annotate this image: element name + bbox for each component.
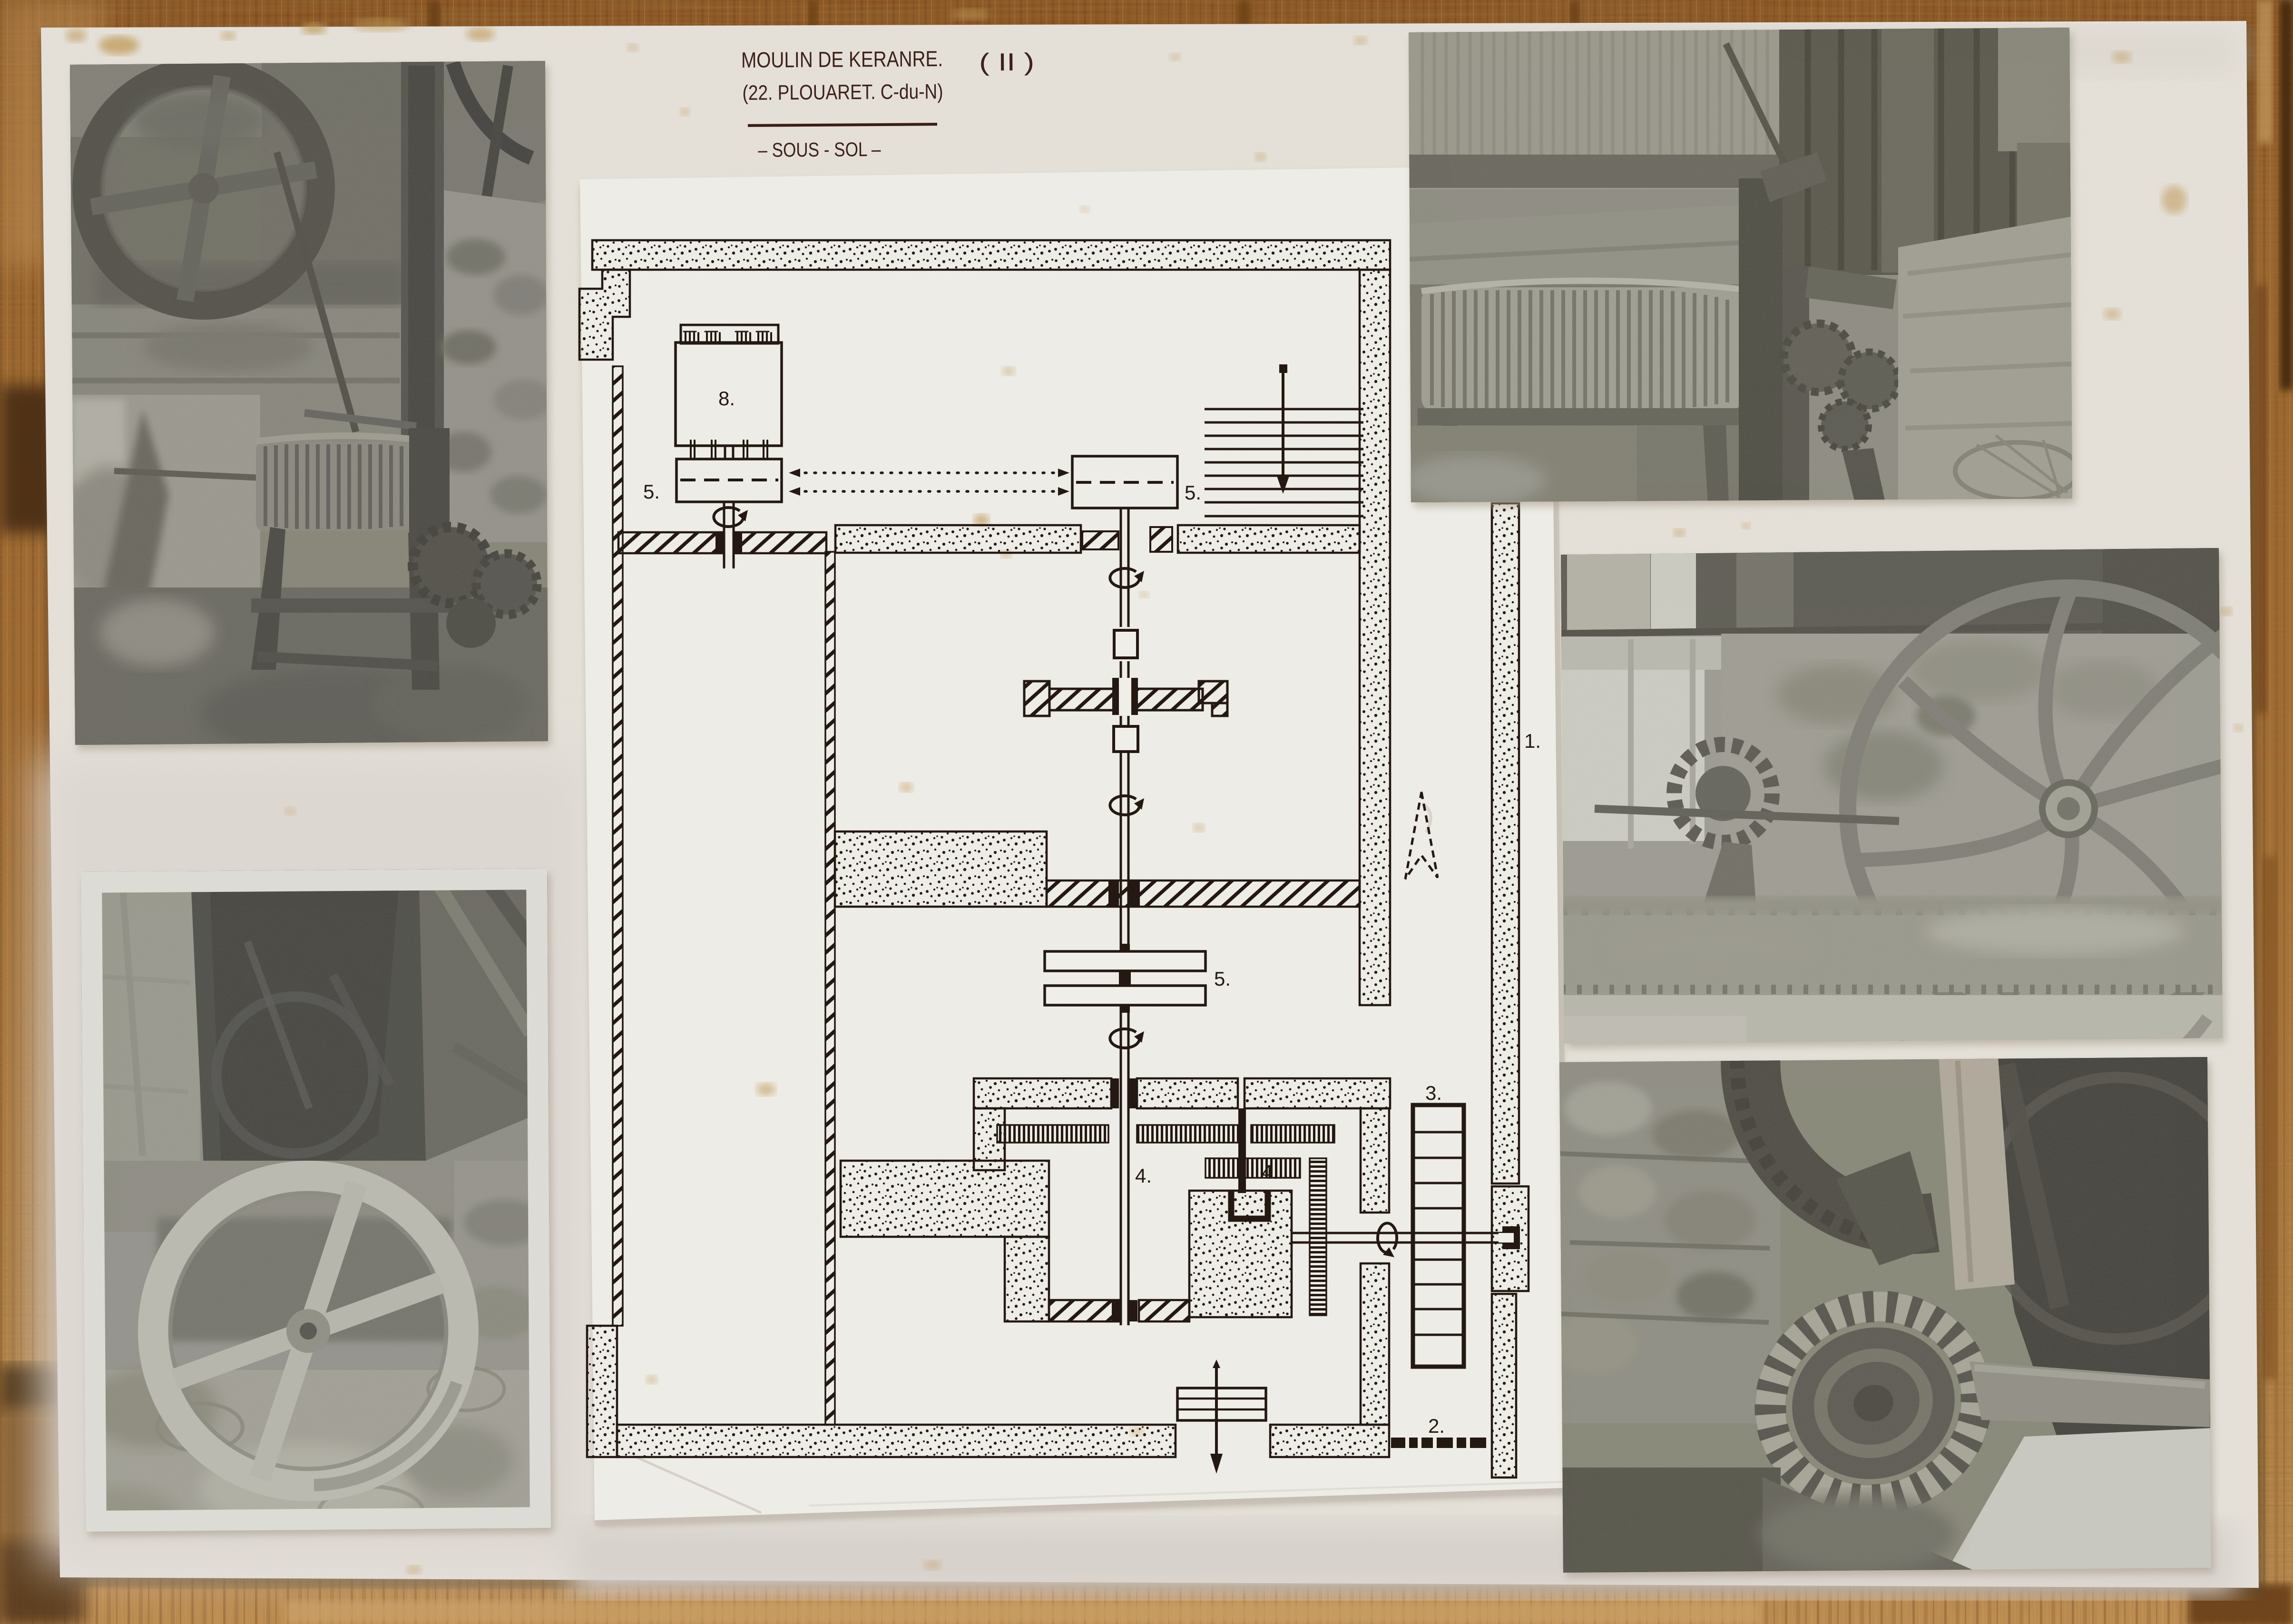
svg-text:8.: 8. [718,387,735,410]
svg-text:( II ): ( II ) [979,49,1034,77]
svg-text:MOULIN DE KERANRE.: MOULIN DE KERANRE. [741,46,943,72]
svg-text:5.: 5. [643,480,660,503]
svg-text:4.: 4. [1135,1164,1152,1187]
svg-text:5.: 5. [1185,481,1201,504]
svg-text:4.: 4. [1262,1161,1278,1183]
svg-text:1.: 1. [1524,730,1541,752]
svg-text:3.: 3. [1425,1082,1442,1104]
svg-text:2.: 2. [1428,1415,1445,1437]
svg-text:– SOUS - SOL –: – SOUS - SOL – [758,138,881,161]
svg-text:(22. PLOUARET. C-du-N): (22. PLOUARET. C-du-N) [742,80,943,105]
svg-text:5.: 5. [1214,968,1231,990]
